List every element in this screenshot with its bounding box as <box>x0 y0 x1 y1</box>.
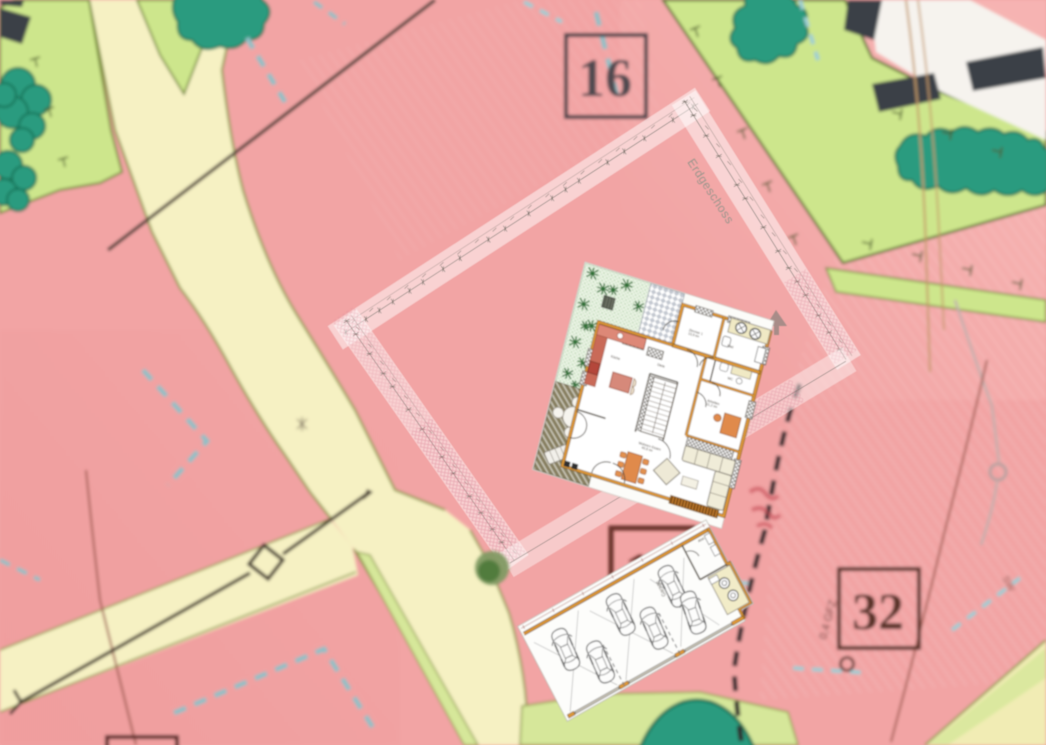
svg-text:32: 32 <box>852 584 904 641</box>
svg-text:16: 16 <box>578 48 632 108</box>
